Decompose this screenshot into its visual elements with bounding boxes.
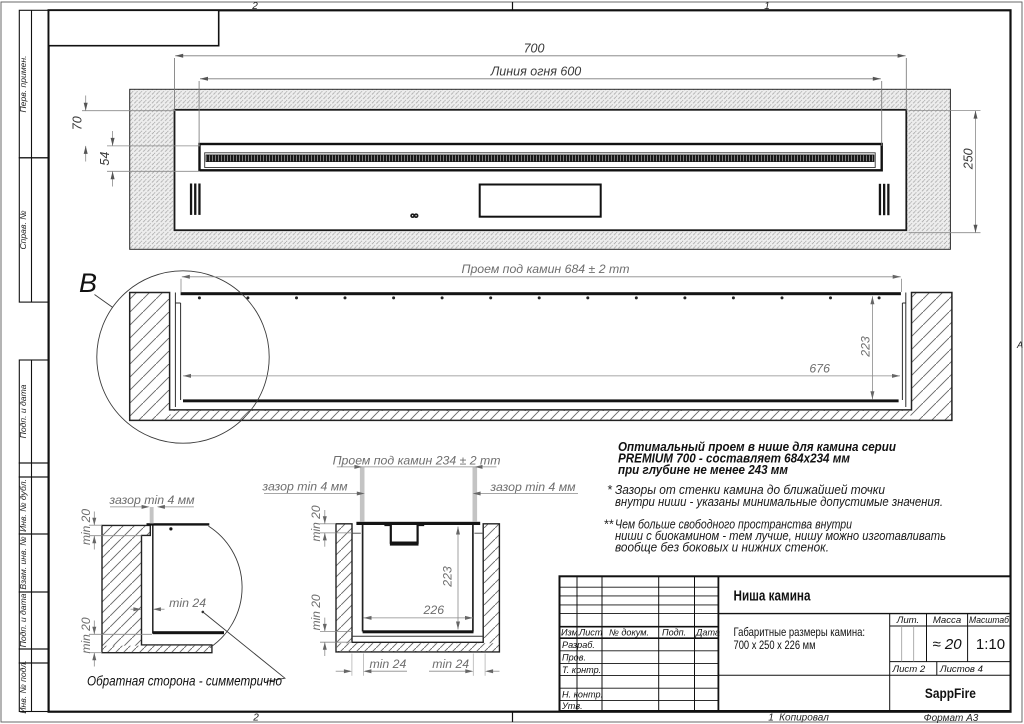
svg-text:min 20: min 20 xyxy=(309,505,323,541)
svg-text:Утв.: Утв. xyxy=(561,701,583,711)
svg-text:Разраб.: Разраб. xyxy=(562,640,595,650)
svg-text:Копировал: Копировал xyxy=(779,713,829,724)
svg-text:2: 2 xyxy=(252,713,259,724)
svg-text:min 20: min 20 xyxy=(309,594,323,630)
svg-text:min 20: min 20 xyxy=(79,617,93,653)
svg-text:внутри ниши - указаны минимал: внутри ниши - указаны минимальные допуст… xyxy=(615,495,943,509)
svg-text:Пров.: Пров. xyxy=(562,653,586,663)
svg-text:1: 1 xyxy=(764,1,770,12)
svg-text:зазор min 4 мм: зазор min 4 мм xyxy=(261,480,348,494)
svg-text:Подп. и дата: Подп. и дата xyxy=(18,593,28,647)
svg-text:**: ** xyxy=(604,518,615,532)
svg-text:min 24: min 24 xyxy=(369,657,406,671)
svg-text:2: 2 xyxy=(251,1,258,12)
svg-text:Перв. примен.: Перв. примен. xyxy=(18,55,28,112)
svg-text:Подп. и дата: Подп. и дата xyxy=(18,384,28,438)
svg-text:54: 54 xyxy=(98,152,112,166)
svg-text:676: 676 xyxy=(809,361,830,375)
svg-text:Подп.: Подп. xyxy=(662,628,686,638)
svg-text:min 24: min 24 xyxy=(169,596,206,610)
svg-text:Изм.: Изм. xyxy=(561,628,580,638)
svg-text:Габаритные размеры камина:: Габаритные размеры камина: xyxy=(734,625,866,639)
svg-text:223: 223 xyxy=(441,566,455,588)
svg-text:Справ. №: Справ. № xyxy=(18,210,28,249)
svg-text:70: 70 xyxy=(71,116,85,130)
svg-text:Формат А3: Формат А3 xyxy=(924,713,979,724)
svg-text:Листов 4: Листов 4 xyxy=(939,664,983,675)
svg-text:min 24: min 24 xyxy=(432,657,469,671)
svg-text:Масштаб: Масштаб xyxy=(969,615,1010,626)
svg-text:Линия огня 600: Линия огня 600 xyxy=(490,65,582,79)
svg-text:B: B xyxy=(79,268,97,298)
svg-text:≈ 20: ≈ 20 xyxy=(932,636,962,653)
svg-text:Проем под камин 684 ± 2 mm: Проем под камин 684 ± 2 mm xyxy=(462,262,630,276)
svg-text:Лист 2: Лист 2 xyxy=(892,664,926,675)
svg-text:SappFire: SappFire xyxy=(925,685,976,701)
svg-text:1:10: 1:10 xyxy=(976,636,1005,653)
svg-text:№ докум.: № докум. xyxy=(609,628,649,638)
svg-text:зазор min 4 мм: зазор min 4 мм xyxy=(489,480,576,494)
svg-text:Инв. № дубл.: Инв. № дубл. xyxy=(18,479,28,532)
svg-text:226: 226 xyxy=(423,603,445,617)
svg-text:700 х 250 х 226 мм: 700 х 250 х 226 мм xyxy=(734,638,816,652)
svg-text:700: 700 xyxy=(524,42,545,56)
svg-text:Инв. № подл.: Инв. № подл. xyxy=(18,660,28,713)
svg-text:Лист: Лист xyxy=(578,628,603,638)
svg-text:зазор min 4 мм: зазор min 4 мм xyxy=(108,493,195,507)
svg-text:223: 223 xyxy=(858,336,872,358)
svg-text:Дата: Дата xyxy=(695,628,720,638)
svg-text:Проем под камин 234 ± 2 mm: Проем под камин 234 ± 2 mm xyxy=(333,453,501,467)
svg-text:Обратная сторона - симметрично: Обратная сторона - симметрично xyxy=(87,674,282,689)
svg-text:А: А xyxy=(1016,340,1023,350)
svg-text:Н. контр.: Н. контр. xyxy=(562,690,603,700)
svg-text:Взам. инв. №: Взам. инв. № xyxy=(18,536,28,589)
svg-text:1: 1 xyxy=(768,713,774,724)
svg-text:вообще без боковых и нижних ст: вообще без боковых и нижних стенок. xyxy=(615,541,829,555)
svg-text:Лит.: Лит. xyxy=(896,615,919,626)
svg-text:min 20: min 20 xyxy=(79,509,93,545)
svg-text:Ниша камина: Ниша камина xyxy=(734,588,812,605)
svg-text:250: 250 xyxy=(962,148,976,170)
svg-text:Т. контр.: Т. контр. xyxy=(562,665,601,675)
svg-text:Масса: Масса xyxy=(933,615,961,626)
svg-text:при глубине не менее 243 мм: при глубине не менее 243 мм xyxy=(618,462,788,477)
